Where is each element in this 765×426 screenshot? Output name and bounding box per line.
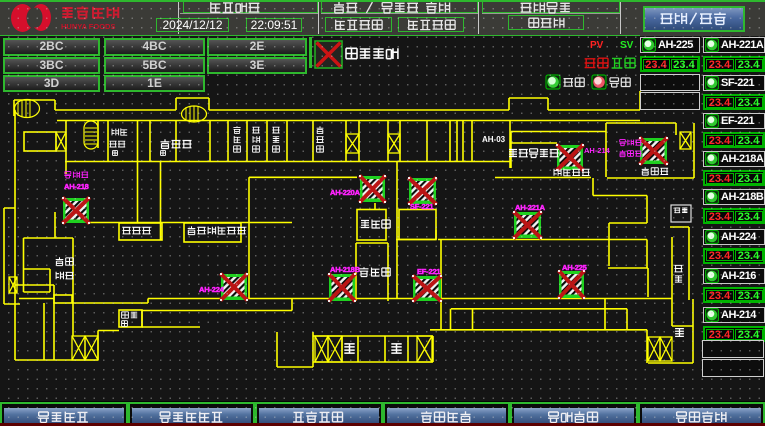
svg-text:EF-221: EF-221 — [417, 267, 440, 276]
svg-text:AH-218B: AH-218B — [330, 265, 361, 274]
svg-text:AH-03: AH-03 — [482, 135, 506, 144]
svg-text:AH-220A: AH-220A — [330, 188, 361, 197]
svg-text:AH-224: AH-224 — [199, 285, 225, 294]
svg-text:SF-221: SF-221 — [410, 202, 433, 211]
svg-text:AH-221A: AH-221A — [515, 203, 546, 212]
svg-text:AH-214: AH-214 — [584, 146, 611, 155]
svg-text:AH-225: AH-225 — [562, 263, 587, 272]
svg-text:AH-218: AH-218 — [64, 182, 89, 191]
